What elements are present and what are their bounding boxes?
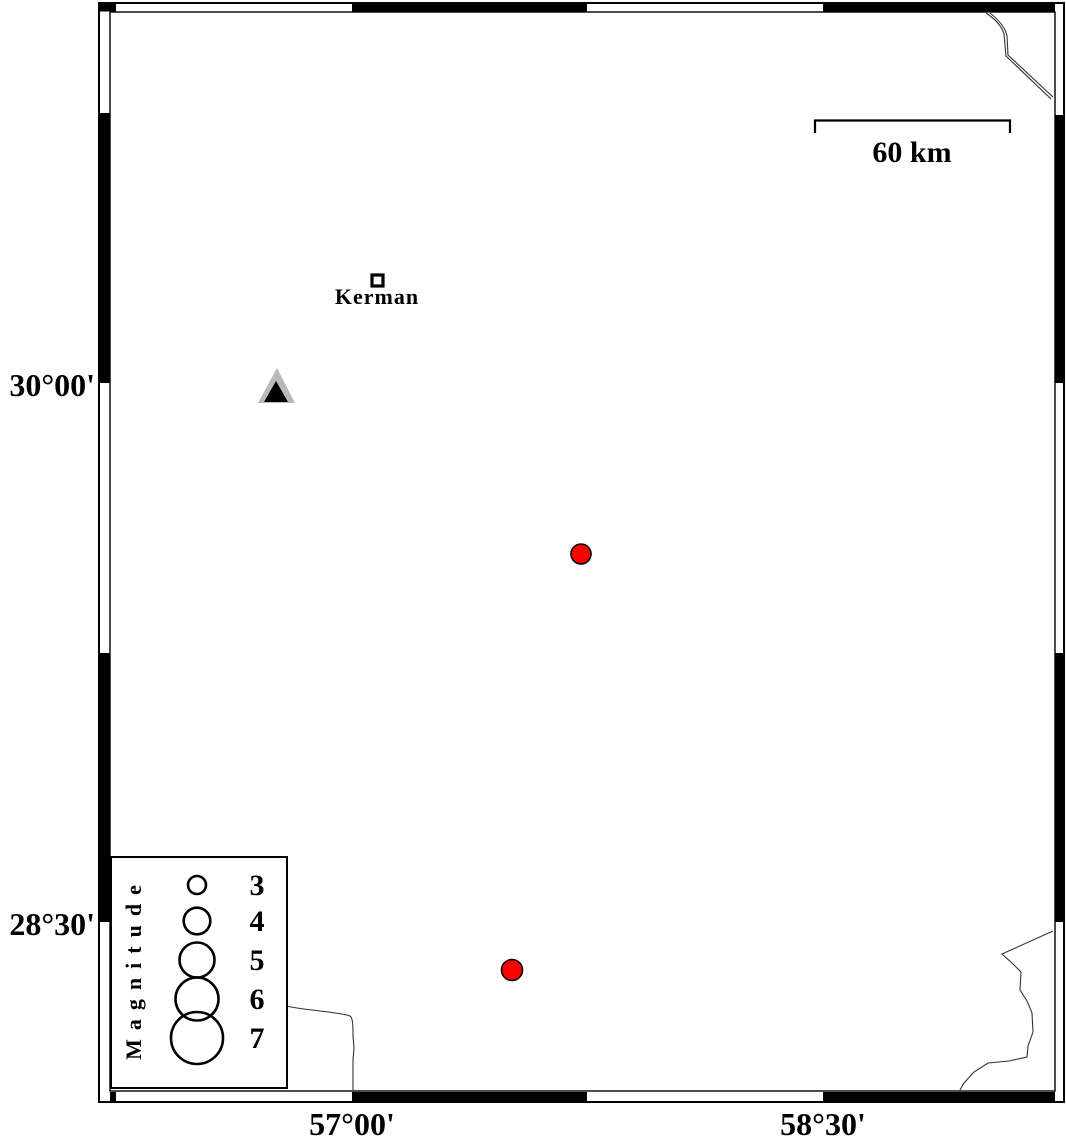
frame-tick-segment [110,1092,116,1101]
scale-bar-label: 60 km [872,136,951,169]
frame-tick-segment [1056,115,1064,383]
frame-tick-segment [100,113,110,383]
legend-magnitude-label-7: 7 [250,1022,265,1055]
scale-bar-bracket [815,121,1010,134]
magnitude-legend: Magnitude 3 4 5 6 7 [111,857,287,1088]
seismic-station-marker [258,368,295,403]
legend-magnitude-label-6: 6 [250,983,265,1016]
earthquake-markers [502,544,592,981]
map-canvas: 60 km 30°00' 28°30' 57°00' 58°30' Kerman… [0,0,1066,1140]
coastline-bottom-right [960,931,1053,1090]
frame-tick-segment [352,4,587,12]
earthquake-epicenter-icon [502,960,523,981]
longitude-label-58-30: 58°30' [780,1106,866,1140]
frame-tick-segment [823,1092,1055,1101]
earthquake-epicenter-icon [571,544,591,564]
latitude-label-28-30: 28°30' [9,906,95,942]
legend-magnitude-label-3: 3 [250,869,265,902]
seismicity-map: 60 km 30°00' 28°30' 57°00' 58°30' Kerman… [0,0,1066,1140]
frame-tick-segment [1056,653,1064,922]
frame-tick-segment [100,653,110,922]
scale-bar: 60 km [815,121,1010,170]
city-label: Kerman [335,284,419,309]
latitude-label-30-00: 30°00' [9,367,95,403]
coastline-lines [286,13,1053,1090]
legend-magnitude-label-5: 5 [250,944,265,977]
legend-magnitude-label-4: 4 [250,905,265,938]
legend-title-magnitude: Magnitude [121,876,146,1060]
longitude-label-57-00: 57°00' [309,1106,395,1140]
frame-tick-segment [100,4,116,12]
frame-tick-segment [352,1092,587,1101]
boundary-bottom-left [286,1006,354,1090]
frame-tick-segment [823,4,1055,12]
city-marker-kerman: Kerman [335,275,419,309]
